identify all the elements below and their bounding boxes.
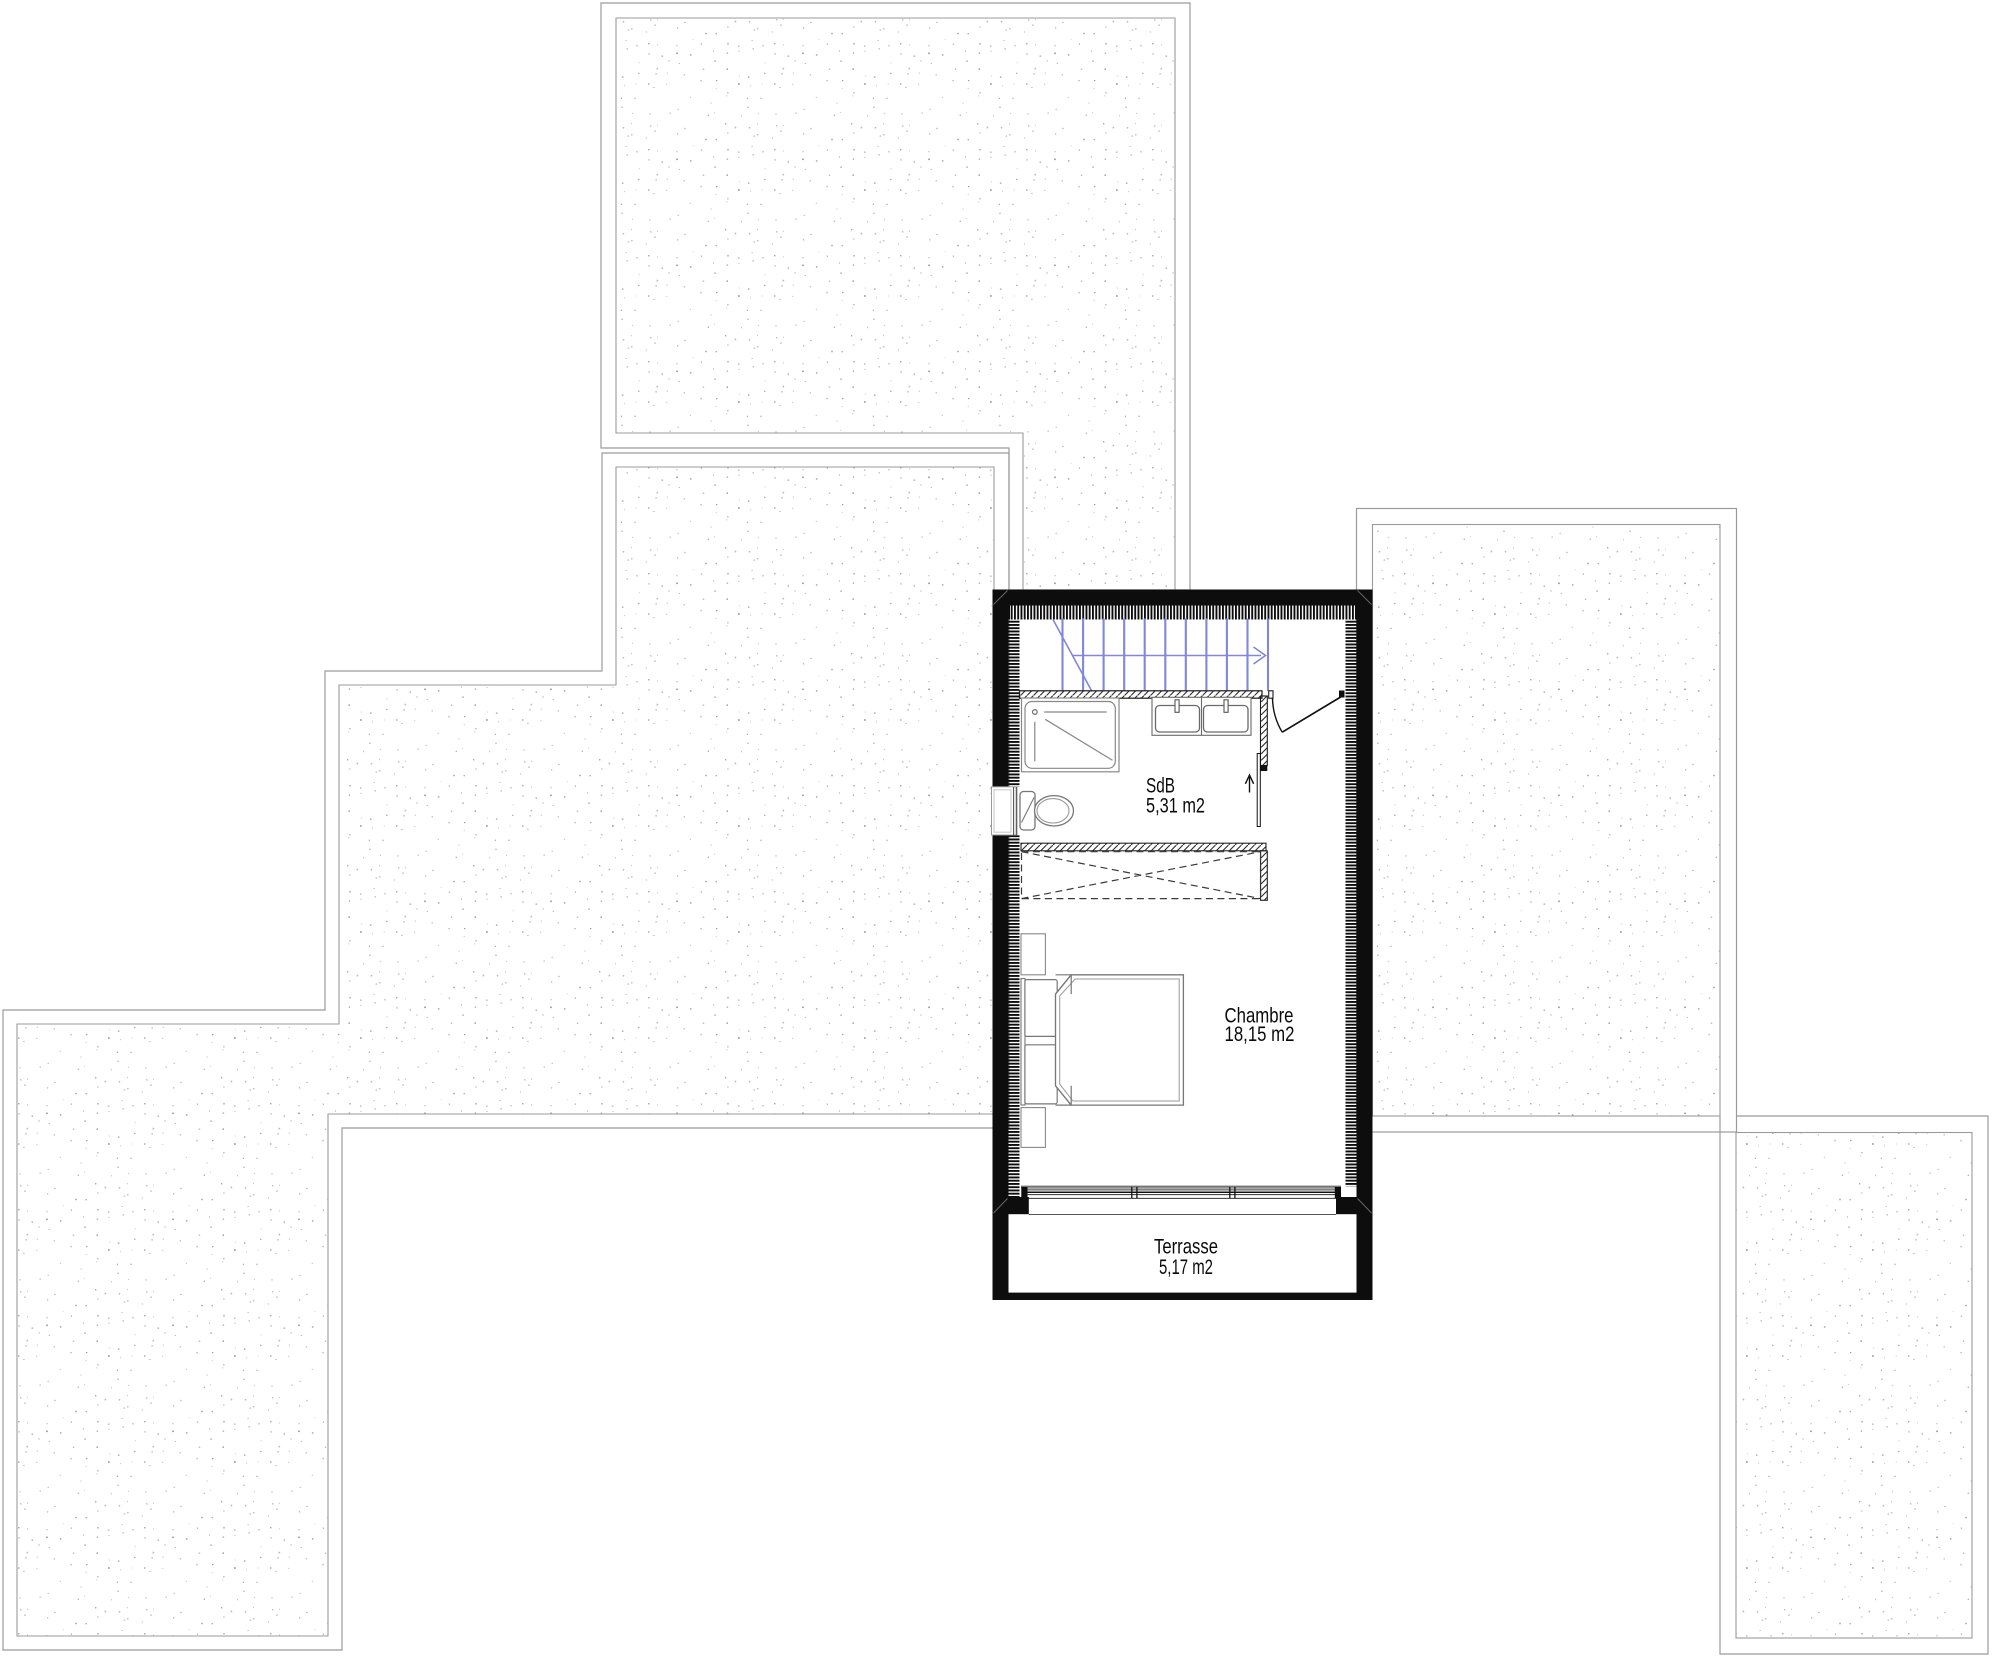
svg-text:18,15 m2: 18,15 m2 (1225, 1022, 1295, 1046)
svg-text:5,31 m2: 5,31 m2 (1146, 793, 1205, 817)
svg-text:5,17 m2: 5,17 m2 (1159, 1255, 1213, 1279)
